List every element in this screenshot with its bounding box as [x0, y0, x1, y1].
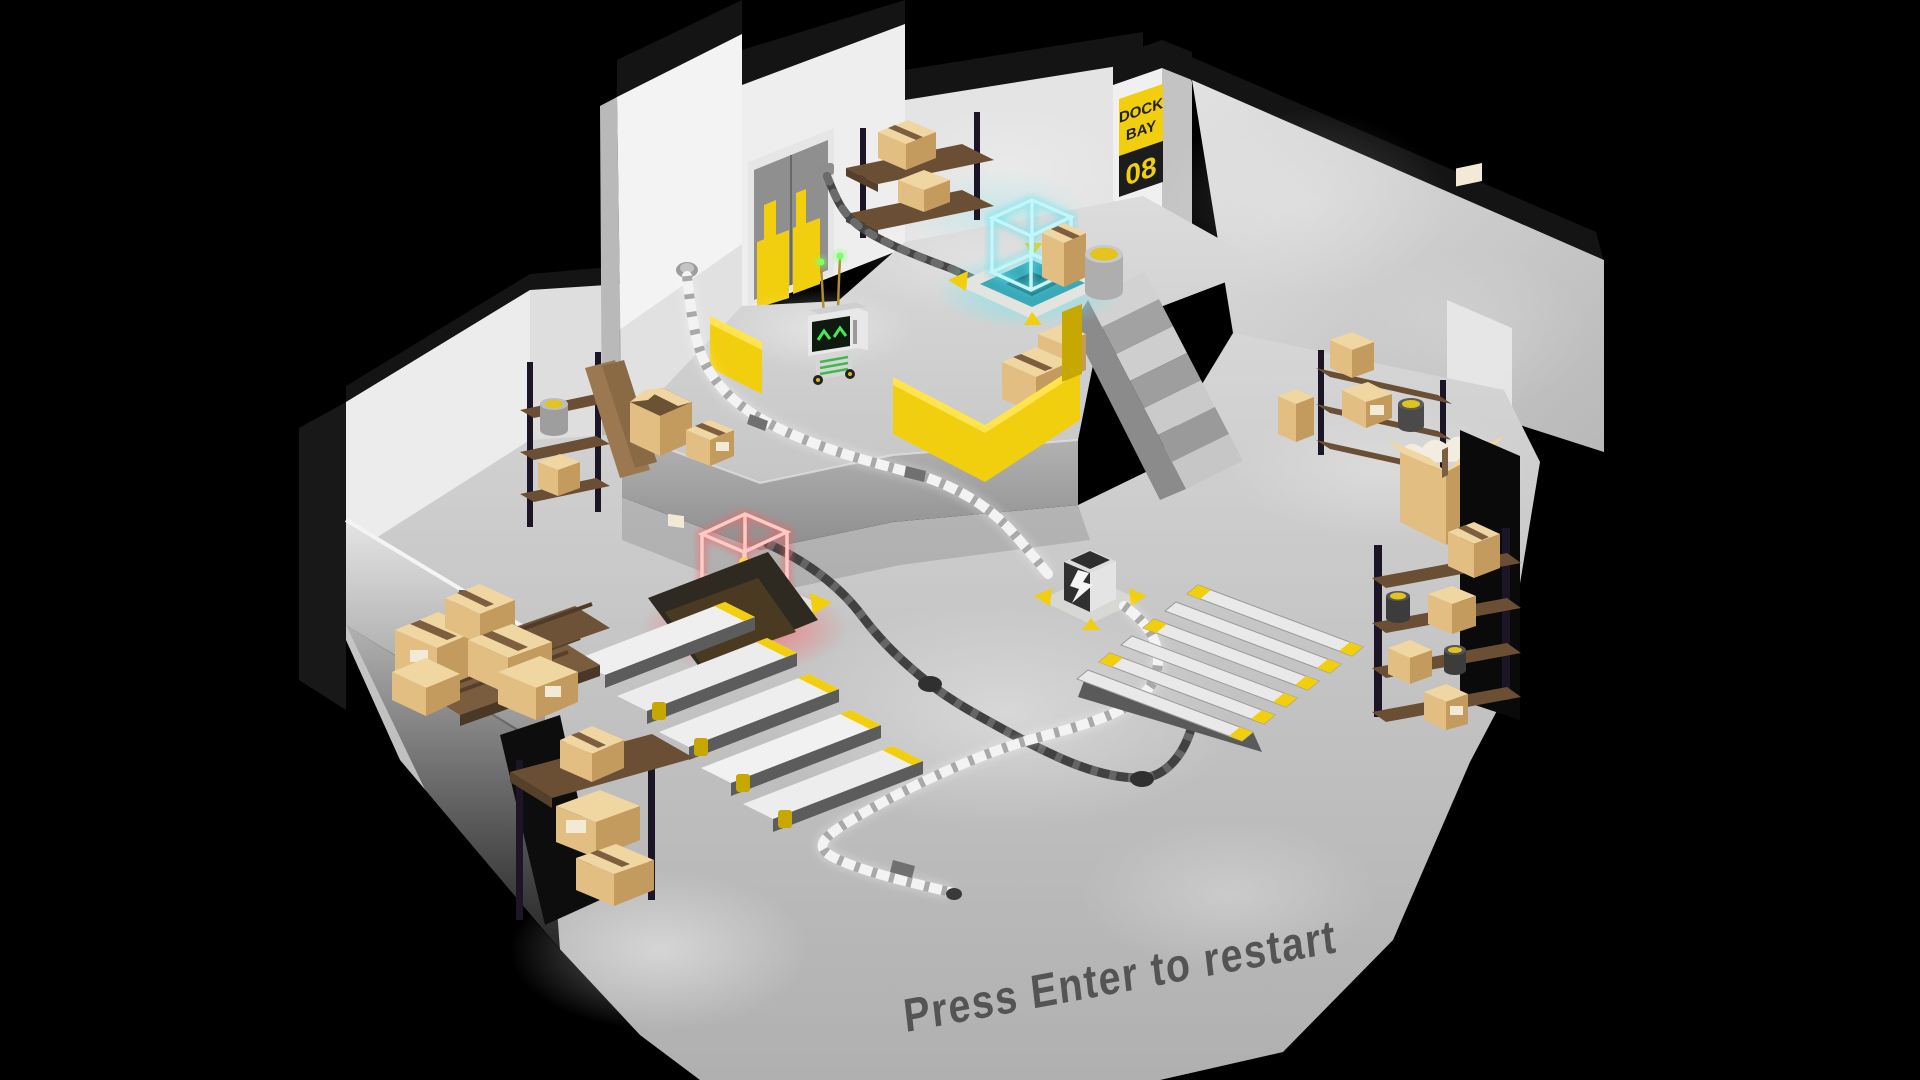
barrel [540, 398, 568, 436]
wall-left-outer-dark [299, 402, 346, 710]
box [1448, 522, 1500, 578]
barrel [1444, 645, 1466, 675]
barrel-blue-area [1085, 245, 1123, 300]
warehouse-scene: DOCK BAY 08 [0, 0, 1920, 1080]
cable-clamp [918, 676, 942, 692]
door-kickplate [793, 218, 820, 294]
cable-clamp [1130, 771, 1154, 787]
barrel [1386, 591, 1410, 623]
box-small-floor [1278, 389, 1314, 442]
box-blue-area [1042, 223, 1086, 287]
game-viewport[interactable]: DOCK BAY 08 [0, 0, 1920, 1080]
box [1428, 586, 1476, 634]
barrel [1398, 398, 1424, 432]
box [538, 454, 580, 496]
